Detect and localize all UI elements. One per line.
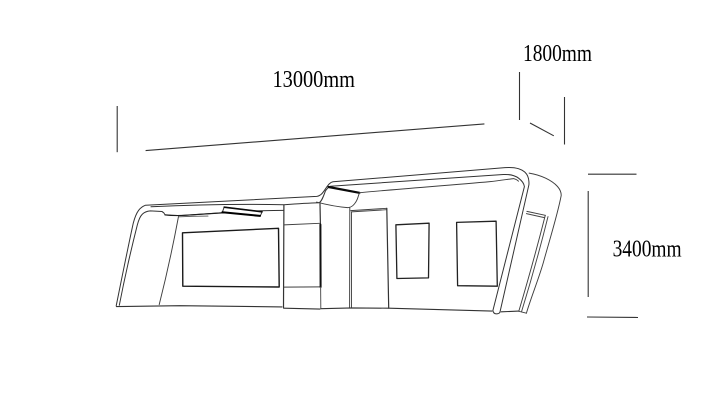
svg-text:13000mm: 13000mm xyxy=(273,67,356,93)
svg-text:3400mm: 3400mm xyxy=(613,236,682,262)
svg-text:1800mm: 1800mm xyxy=(523,41,592,67)
